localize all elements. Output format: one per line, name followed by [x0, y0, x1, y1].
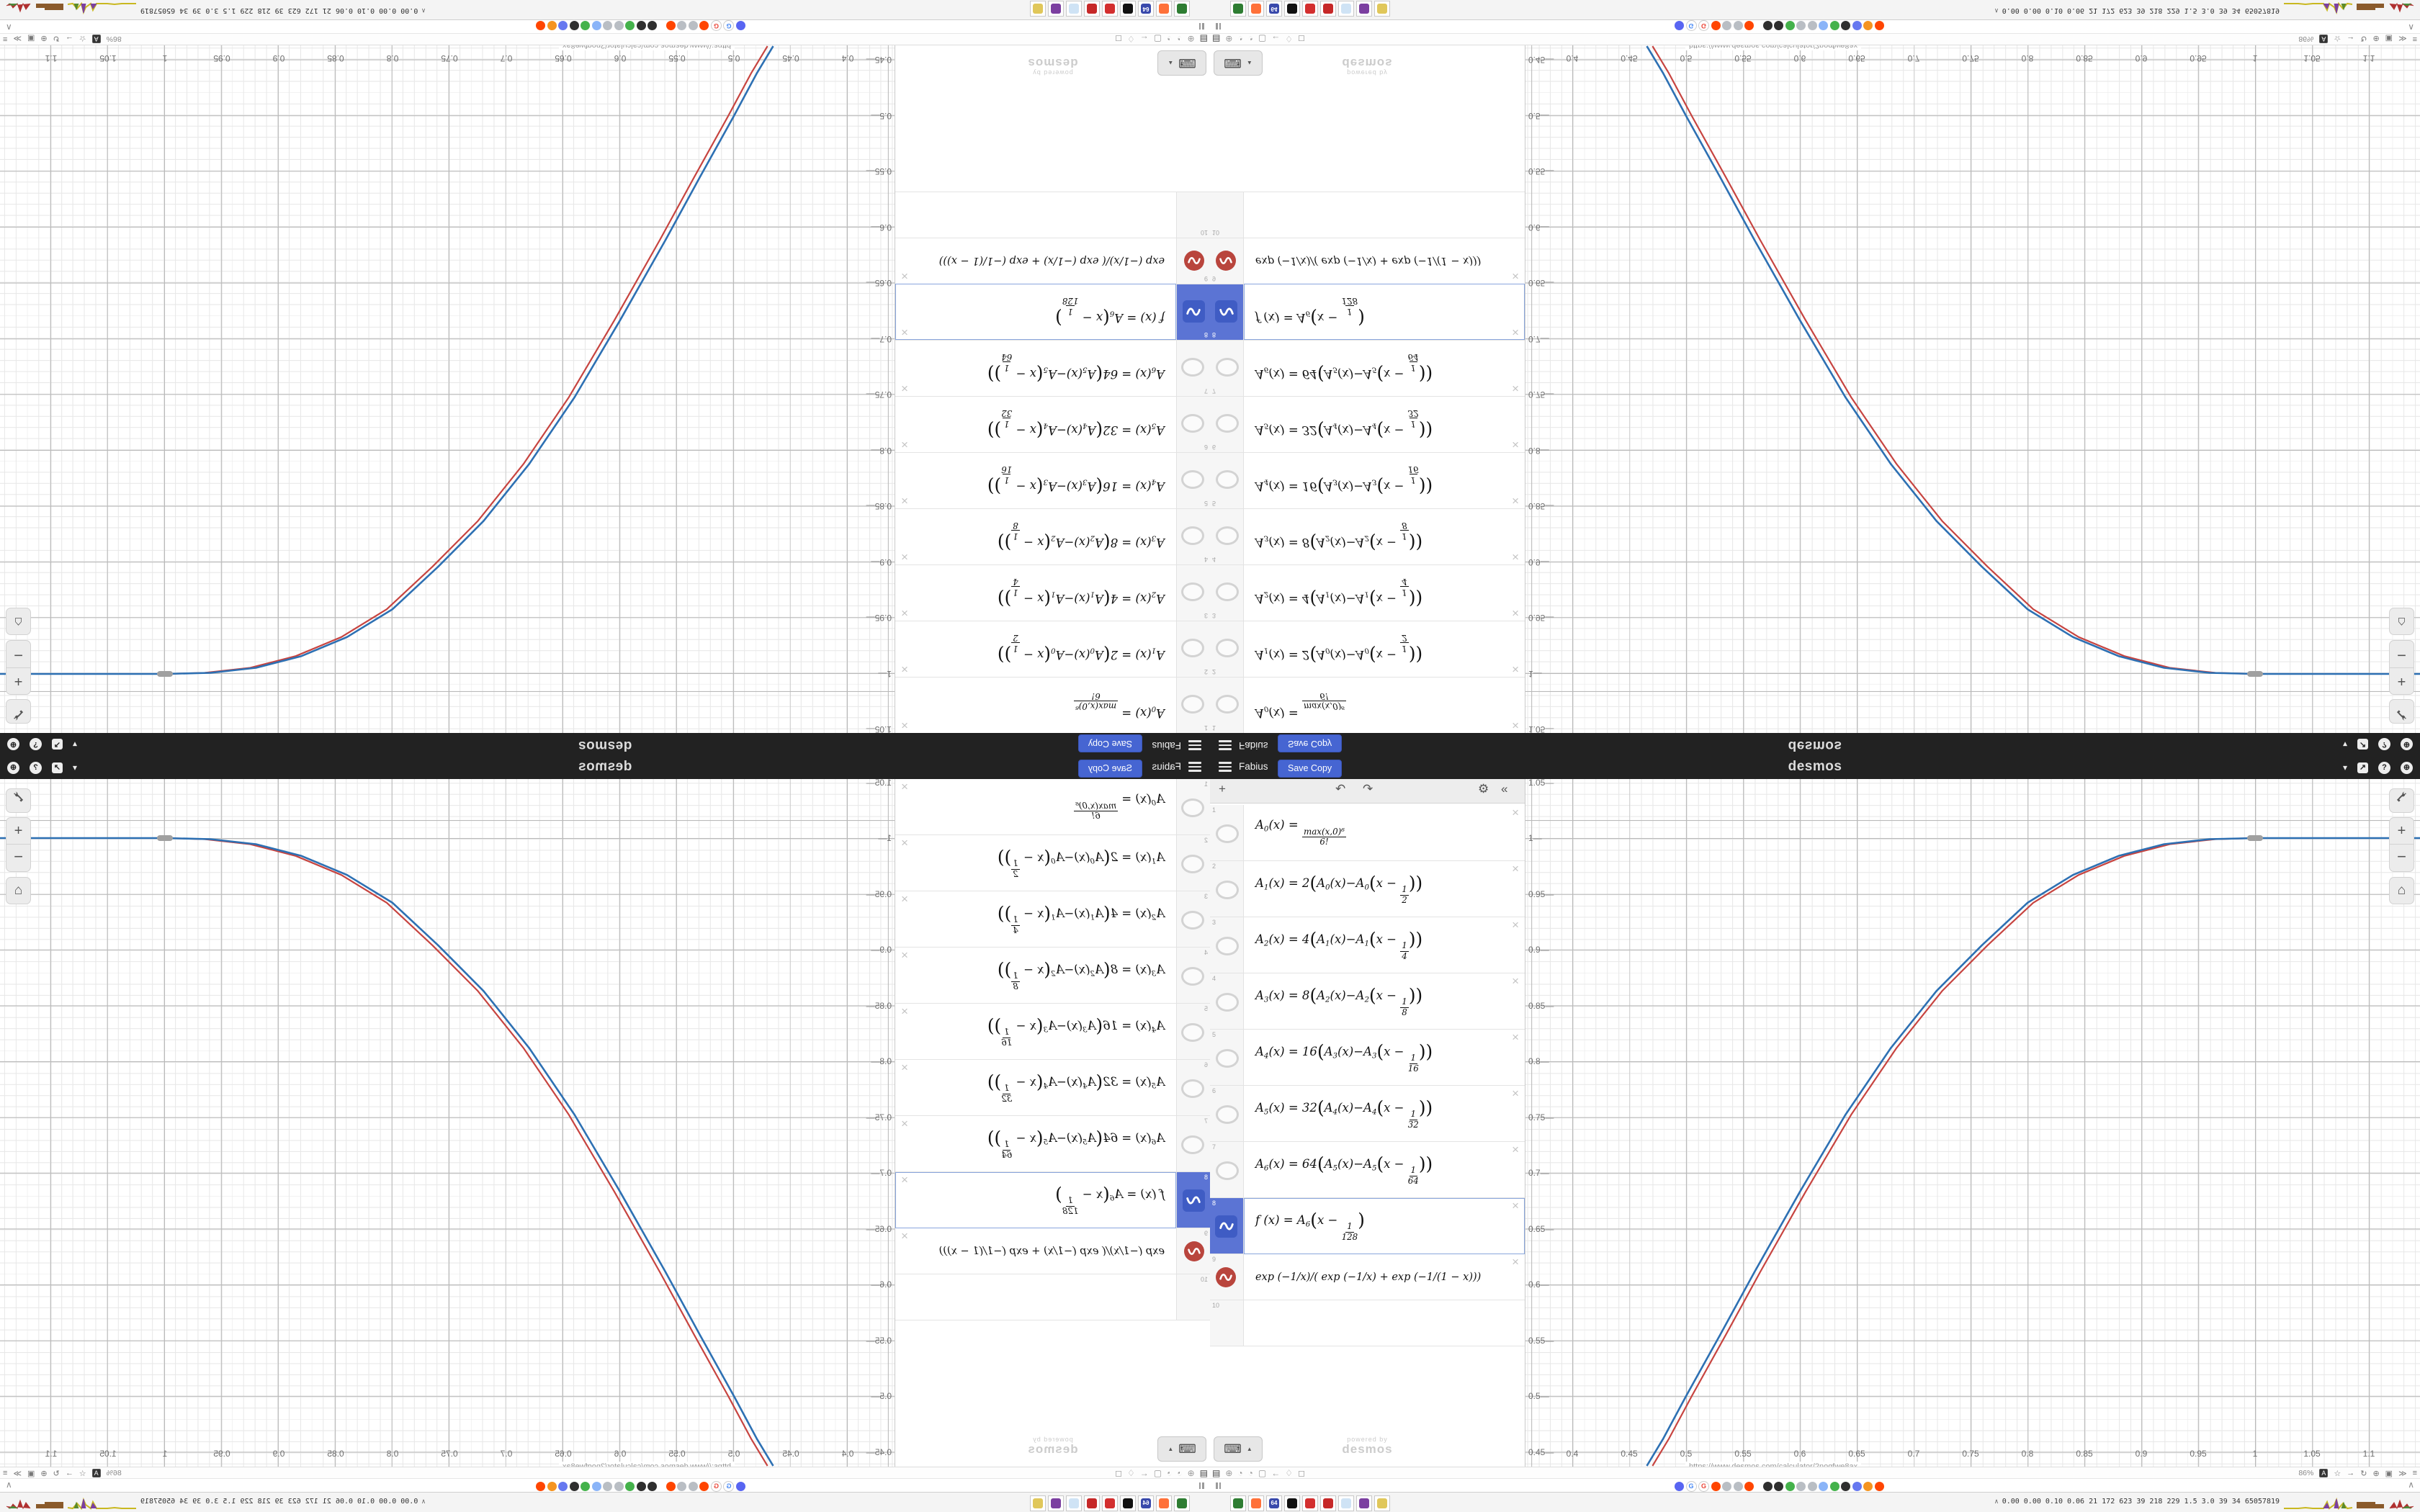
fraction-denominator: 32	[1001, 408, 1012, 418]
forward-arrow-icon: →	[66, 35, 73, 43]
y-axis-label: 0.8—	[1528, 1056, 1549, 1066]
expression-gutter-toggle: 10	[1176, 1274, 1210, 1320]
curve-wave-icon	[1187, 1193, 1201, 1207]
expression-math: A2(x) = 4(A1(x)−A1(x − 14))	[1255, 929, 1422, 962]
clipboard-icon: ▣	[27, 1469, 35, 1478]
statusbar-left-icon[interactable]: ◔	[1237, 1468, 1242, 1478]
y-tick: —	[866, 613, 875, 624]
taskbar-app-icon[interactable]	[1338, 1495, 1354, 1511]
network-sparkline	[6, 1496, 32, 1511]
x-axis-label: 0.6	[1794, 53, 1806, 63]
y-axis-label: 0.75—	[866, 1112, 892, 1122]
globe-icon[interactable]: ⊕	[2401, 762, 2413, 774]
y-axis-label: 0.85—	[1528, 502, 1554, 512]
delete-expression-icon: ×	[901, 552, 908, 562]
tab-favicon[interactable]	[1841, 1482, 1850, 1491]
selected-curve-icon	[1183, 301, 1205, 323]
tracker-globe-icon: ⊕	[40, 1469, 47, 1478]
expression-gutter-toggle[interactable]: 6	[1210, 1086, 1244, 1142]
expression-gutter-toggle[interactable]: 5	[1210, 1030, 1244, 1086]
expression-row: 5A4(x) = 16(A3(x)−A3(x − 116))×	[895, 1004, 1210, 1060]
expression-content: A4(x) = 16(A3(x)−A3(x − 116))×	[895, 452, 1176, 508]
y-axis-label: 0.7—	[1528, 1168, 1549, 1178]
hidden-curve-icon	[1181, 359, 1204, 377]
row-number: 8	[1204, 331, 1208, 338]
delete-expression-icon[interactable]: ×	[1512, 808, 1519, 818]
math-paren: )	[1005, 903, 1012, 924]
expression-content[interactable]: A1(x) = 2(A0(x)−A0(x − 12))×	[1244, 861, 1525, 917]
x-axis-label: 0.55	[1734, 1449, 1751, 1459]
math-text: (x) = 32	[1268, 423, 1317, 437]
math-text: A	[1255, 1157, 1264, 1171]
expression-gutter-toggle: 5	[1210, 452, 1244, 508]
statusbar-left-icon: ▤	[1200, 1468, 1208, 1478]
header-actions: ▾ ↗ ? ⊕	[2343, 756, 2413, 779]
expression-content: A3(x) = 8(A2(x)−A2(x − 18))×	[895, 948, 1176, 1004]
expression-row: 3A2(x) = 4(A1(x)−A1(x − 14))×	[895, 891, 1210, 948]
expression-math: A2(x) = 4(A1(x)−A1(x − 14))	[1255, 577, 1422, 610]
system-monitor-sparklines	[2284, 1495, 2414, 1511]
expression-content[interactable]: A6(x) = 64(A5(x)−A5(x − 164))×	[1244, 1142, 1525, 1198]
add-expression-button[interactable]: +	[1219, 782, 1226, 796]
math-text: (x)−A	[1056, 592, 1090, 606]
tab-favicon[interactable]	[1819, 1482, 1828, 1491]
math-subscript: 3	[1044, 478, 1049, 486]
math-text: A	[1156, 367, 1165, 381]
expression-content[interactable]: exp (−1/x)/( exp (−1/x) + exp (−1/(1 − x…	[1244, 1254, 1525, 1300]
math-paren: (	[1369, 873, 1376, 894]
expression-content[interactable]: A4(x) = 16(A3(x)−A3(x − 116))×	[1244, 1030, 1525, 1086]
taskbar-app-icon	[1066, 1, 1082, 17]
taskbar-app-icon[interactable]	[1230, 1495, 1246, 1511]
math-fraction: 18	[1400, 521, 1409, 541]
statusbar-left-icon[interactable]: ⊕	[1225, 1468, 1232, 1478]
edit-list-gear-icon[interactable]: ⚙	[1478, 782, 1489, 796]
taskbar-app-icon[interactable]	[1302, 1495, 1318, 1511]
tab-favicon[interactable]	[1744, 1482, 1754, 1491]
home-button[interactable]: ⌂	[2389, 877, 2414, 904]
tab-favicon[interactable]	[1852, 1482, 1862, 1491]
curve-blue	[1647, 46, 2420, 674]
taskbar-app-icon[interactable]	[1320, 1495, 1336, 1511]
translate-icon[interactable]: A	[2319, 1469, 2328, 1477]
network-sparkline	[2388, 1, 2414, 16]
expression-content: A6(x) = 64(A5(x)−A5(x − 164))×	[895, 1116, 1176, 1172]
zoom-out-button: −	[6, 844, 31, 872]
expression-gutter-toggle[interactable]: 7	[1210, 1142, 1244, 1198]
delete-expression-icon: ×	[901, 271, 908, 281]
graph-paper: 1.05—1—0.95—0.9—0.85—0.8—0.75—0.7—0.65—0…	[0, 45, 895, 733]
y-tick: —	[871, 557, 879, 567]
expression-row: 1A0(x) = max(x,0)⁶6!×	[1210, 805, 1525, 861]
math-text: (x) = 8	[1111, 963, 1152, 976]
x-axis-label: 0.45	[782, 53, 799, 63]
expression-row: 8f (x) = A6(x − 1128)×	[1210, 1198, 1525, 1254]
clipboard-icon: ▣	[27, 35, 35, 44]
y-tick: —	[1541, 557, 1549, 567]
browser-screen: Fabius Save Copy desmos ▾ ↗ ? ⊕ + ↶ ↷ ⚙ …	[0, 0, 1210, 756]
delete-expression-icon[interactable]: ×	[1512, 920, 1519, 930]
math-paren: )	[998, 847, 1005, 868]
math-text: (x)−A	[1330, 536, 1365, 549]
share-icon[interactable]: ↗	[2357, 762, 2368, 773]
math-fraction: 14	[1400, 941, 1409, 961]
math-text: f (x) = A	[1255, 1213, 1306, 1227]
expression-list: 1A0(x) = max(x,0)⁶6!×2A1(x) = 2(A0(x)−A0…	[1210, 805, 1525, 1346]
taskbar-app-icon[interactable]	[1374, 1495, 1390, 1511]
reload-icon[interactable]: ↻	[2360, 1469, 2367, 1478]
expression-gutter-toggle: 8	[1176, 1172, 1210, 1228]
x-axis-label: 1.05	[2303, 1449, 2320, 1459]
y-axis-label: 0.8—	[871, 446, 892, 456]
tab-favicon[interactable]	[1774, 1482, 1783, 1491]
math-text: A	[1317, 592, 1325, 606]
tabbar-collapse-icon[interactable]: ∧	[2408, 1480, 2414, 1490]
expression-content[interactable]: A2(x) = 4(A1(x)−A1(x − 14))×	[1244, 917, 1525, 973]
tracker-globe-icon[interactable]: ⊕	[2372, 1469, 2379, 1478]
math-text: x −	[1020, 648, 1044, 662]
math-subscript: 4	[1083, 1082, 1088, 1090]
x-axis-label: 0.5	[728, 53, 740, 63]
taskbar-app-icon[interactable]	[1248, 1495, 1264, 1511]
app-glyph	[1087, 1498, 1097, 1508]
delete-expression-icon: ×	[1512, 608, 1519, 618]
fraction-numerator: 1	[1003, 1084, 1011, 1094]
math-paren: (	[1044, 903, 1051, 924]
y-axis-label: 0.6—	[871, 222, 892, 233]
delete-expression-icon[interactable]: ×	[1512, 976, 1519, 986]
tab-favicon	[1841, 22, 1850, 31]
taskbar-app-icon	[1102, 1495, 1118, 1511]
expression-gutter-toggle: 3	[1210, 564, 1244, 621]
powered-by-watermark: powered by desmos	[895, 57, 1210, 76]
math-text: A	[1087, 480, 1095, 493]
math-paren: (	[1095, 1071, 1103, 1092]
tab-favicon[interactable]	[1785, 1482, 1795, 1491]
expression-gutter-toggle[interactable]: 3	[1210, 917, 1244, 973]
math-paren: )	[1415, 588, 1422, 609]
tab-favicon[interactable]	[1675, 1482, 1684, 1491]
y-tick: —	[866, 390, 875, 400]
math-text: (x) = 8	[1268, 989, 1309, 1002]
curve-wave-icon	[1219, 1219, 1234, 1233]
scroll-up-icon: ∧	[1994, 6, 1998, 14]
y-axis-label: 0.55—	[866, 1336, 892, 1346]
expression-content[interactable]: A5(x) = 32(A4(x)−A4(x − 132))×	[1244, 1086, 1525, 1142]
math-text: x −	[1078, 1187, 1103, 1201]
tab-favicon[interactable]	[1711, 1482, 1721, 1491]
x-axis-label: 1	[163, 53, 168, 63]
redo-icon[interactable]: ↷	[1363, 782, 1373, 796]
y-axis-label: 0.6—	[1528, 222, 1549, 233]
tab-favicon[interactable]	[1763, 1482, 1773, 1491]
y-tick: —	[1545, 1336, 1554, 1346]
x-axis-label: 1.1	[2363, 53, 2375, 63]
y-axis-label: 0.9—	[871, 945, 892, 955]
expression-gutter-toggle: 4	[1210, 508, 1244, 564]
taskbar-app-icon	[1048, 1, 1064, 17]
expression-math: A0(x) = max(x,0)⁶6!	[1255, 690, 1346, 720]
chevron-down-icon[interactable]: ▾	[2343, 762, 2347, 773]
expression-gutter-toggle: 10	[1176, 192, 1210, 238]
x-axis-label: 0.7	[1908, 1449, 1920, 1459]
math-paren: (	[1309, 929, 1317, 950]
delete-expression-icon: ×	[1512, 495, 1519, 505]
math-paren: )	[1055, 1184, 1062, 1205]
fraction-denominator: 16	[1001, 464, 1012, 474]
math-text: x −	[1020, 906, 1044, 920]
chevrons-icon[interactable]: ≫	[2398, 1469, 2407, 1478]
math-text: x −	[1317, 1213, 1342, 1227]
expression-gutter-toggle[interactable]: 8	[1210, 1198, 1244, 1254]
app-glyph	[1105, 4, 1115, 14]
tab-favicon	[547, 22, 557, 31]
math-subscript: 5	[1083, 366, 1088, 374]
math-text: A	[1255, 932, 1264, 946]
fraction-denominator: 32	[1408, 408, 1419, 418]
undo-icon[interactable]: ↶	[1335, 782, 1345, 796]
delete-expression-icon: ×	[901, 1119, 908, 1129]
tab-favicon[interactable]	[1734, 1482, 1743, 1491]
tab-favicon[interactable]	[1796, 1482, 1806, 1491]
math-paren: (	[1376, 1041, 1384, 1062]
tab-favicon[interactable]	[1830, 1482, 1839, 1491]
expression-content: A1(x) = 2(A0(x)−A0(x − 12))×	[895, 621, 1176, 677]
fraction-numerator: 1	[1066, 305, 1075, 316]
expression-math: f (x) = A6(x − 1128)	[1055, 1184, 1165, 1217]
menu-lines-icon[interactable]: ≡	[2413, 1469, 2417, 1477]
x-axis-label: 1.1	[45, 53, 58, 63]
expression-content[interactable]: A3(x) = 8(A2(x)−A2(x − 18))×	[1244, 973, 1525, 1030]
expression-gutter-toggle[interactable]: 4	[1210, 973, 1244, 1030]
row-number: 3	[1212, 919, 1216, 926]
expression-math: A2(x) = 4(A1(x)−A1(x − 14))	[998, 577, 1165, 610]
graph-paper[interactable]: 1.05—1—0.95—0.9—0.85—0.8—0.75—0.7—0.65—0…	[1525, 779, 2420, 1467]
page-zoom-level: 86%	[107, 1469, 122, 1477]
y-tick: —	[866, 778, 875, 788]
expression-gutter-toggle[interactable]: 2	[1210, 861, 1244, 917]
curve-wave-icon	[1188, 1245, 1201, 1258]
y-tick: —	[1541, 446, 1549, 456]
math-paren: (	[1310, 307, 1317, 328]
math-fraction: 1128	[1342, 296, 1358, 316]
zoom-in-button[interactable]: +	[2389, 817, 2414, 845]
tab-favicon[interactable]: G	[1698, 1481, 1709, 1492]
x-axis-label: 1.1	[45, 1449, 58, 1459]
fraction-denominator: 2	[1402, 633, 1407, 643]
math-text: x −	[1376, 536, 1401, 549]
y-tick: —	[1545, 502, 1554, 512]
expression-gutter-toggle[interactable]: 10	[1210, 1300, 1244, 1346]
y-axis-label: 0.85—	[866, 502, 892, 512]
math-paren: )	[1415, 985, 1422, 1006]
tab-favicon[interactable]	[1863, 1482, 1873, 1491]
y-axis-label: 0.85—	[1528, 1001, 1554, 1011]
tab-favicon	[1744, 22, 1754, 31]
tab-favicons: GG	[1675, 1481, 1884, 1492]
expression-math: A6(x) = 64(A5(x)−A5(x − 164))	[987, 352, 1165, 385]
math-paren: )	[994, 1128, 1001, 1148]
expression-list: 1A0(x) = max(x,0)⁶6!×2A1(x) = 2(A0(x)−A0…	[895, 192, 1210, 733]
zoom-out-button[interactable]: −	[2389, 844, 2414, 872]
delete-expression-icon[interactable]: ×	[1512, 1257, 1519, 1267]
expression-math: A0(x) = max(x,0)⁶6!	[1074, 690, 1165, 720]
forward-arrow-icon[interactable]: →	[2347, 1469, 2354, 1477]
expression-gutter-toggle: 2	[1210, 621, 1244, 677]
taskbar-app-icon: 64	[1266, 1, 1282, 17]
math-text: x −	[1012, 1075, 1036, 1089]
x-axis-label: 0.5	[1680, 1449, 1693, 1459]
x-axis-label: 0.75	[441, 53, 457, 63]
math-paren: )	[1419, 1041, 1426, 1062]
math-text: A	[1255, 818, 1264, 832]
math-text: A	[1095, 963, 1103, 976]
help-icon[interactable]: ?	[2378, 762, 2390, 774]
expression-content[interactable]: A0(x) = max(x,0)⁶6!×	[1244, 805, 1525, 861]
delete-expression-icon[interactable]: ×	[1512, 1201, 1519, 1211]
statusbar-left-icon: ◔	[1167, 1468, 1172, 1478]
statusbar-left-icon[interactable]: ◔	[1248, 1468, 1253, 1478]
delete-expression-icon[interactable]: ×	[1512, 864, 1519, 874]
tab-favicon	[1785, 22, 1795, 31]
tab-favicon[interactable]	[1808, 1482, 1817, 1491]
math-paren: (	[1103, 588, 1111, 609]
math-paren: (	[1044, 847, 1051, 868]
y-axis-label: 0.8—	[871, 1056, 892, 1066]
math-text: A	[1087, 367, 1095, 381]
tab-favicon	[689, 22, 698, 31]
math-text: A	[1095, 648, 1103, 662]
math-text: x −	[1012, 367, 1036, 381]
y-axis-label: 0.65—	[1528, 1224, 1554, 1234]
tab-favicon	[626, 1482, 635, 1491]
fraction-numerator: 1	[1003, 474, 1011, 485]
delete-expression-icon: ×	[1512, 720, 1519, 730]
math-paren: )	[994, 476, 1001, 497]
math-text: (x)−A	[1056, 536, 1090, 549]
x-axis-label: 1.05	[2303, 53, 2320, 63]
expression-row: 2A1(x) = 2(A0(x)−A0(x − 12))×	[1210, 861, 1525, 917]
statusbar-left-icon[interactable]: ▢	[1258, 1468, 1266, 1478]
graph-settings-wrench-button[interactable]	[2389, 788, 2414, 813]
red-curve-icon	[1216, 251, 1236, 271]
y-axis-label: 0.55—	[1528, 1336, 1554, 1346]
math-fraction: 132	[1001, 1084, 1012, 1104]
math-text: x −	[1012, 480, 1036, 493]
reload-icon: ↻	[53, 35, 60, 44]
expression-row: 5A4(x) = 16(A3(x)−A3(x − 116))×	[1210, 1030, 1525, 1086]
expression-row: 10	[1210, 1300, 1525, 1346]
taskbar-app-icon[interactable]	[1356, 1495, 1372, 1511]
math-text: A	[1317, 932, 1325, 946]
tab-favicon[interactable]	[1722, 1482, 1731, 1491]
x-axis-label: 0.65	[1848, 53, 1865, 63]
statusbar-left-icon[interactable]: ♢	[1285, 1468, 1293, 1478]
taskbar-app-icon	[1284, 1, 1300, 17]
graph-settings-wrench-button	[6, 699, 31, 724]
hidden-curve-icon	[1216, 359, 1239, 377]
taskbar-app-icon[interactable]: 64	[1266, 1495, 1282, 1511]
taskbar-app-icon	[1084, 1495, 1100, 1511]
tab-favicon	[678, 1482, 687, 1491]
expression-gutter-toggle: 8	[1176, 284, 1210, 340]
expression-gutter-toggle[interactable]: 1	[1210, 805, 1244, 861]
math-text: (x) = 32	[1103, 1075, 1152, 1089]
row-number: 10	[1212, 229, 1219, 236]
statusbar-left-icon[interactable]: ◻	[1298, 1468, 1305, 1478]
y-tick: —	[866, 1447, 875, 1457]
delete-expression-icon[interactable]: ×	[1512, 1089, 1519, 1099]
expression-content[interactable]	[1244, 1300, 1525, 1346]
tab-favicon: G	[1686, 21, 1697, 32]
fraction-denominator: 64	[1001, 352, 1012, 362]
wrench-icon	[12, 791, 24, 804]
os-taskbar: 64 ∧0.00 0.00 0.10 0.06 21 172 623 39 21…	[0, 0, 1210, 20]
browser-screen: Fabius Save Copy desmos ▾ ↗ ? ⊕ + ↶ ↷ ⚙ …	[1210, 0, 2420, 756]
math-text: x −	[1376, 876, 1401, 890]
tab-favicon	[1819, 22, 1828, 31]
delete-expression-icon[interactable]: ×	[1512, 1145, 1519, 1155]
app-glyph	[1233, 1498, 1243, 1508]
delete-expression-icon: ×	[1512, 552, 1519, 562]
math-text: A	[1156, 648, 1165, 662]
app-glyph	[1251, 1498, 1261, 1508]
bookmark-star-icon[interactable]: ☆	[2334, 1469, 2341, 1478]
clipboard-icon[interactable]: ▣	[2385, 1469, 2393, 1478]
y-tick: —	[878, 833, 887, 843]
statusbar-left-icon[interactable]: ▤	[1212, 1468, 1220, 1478]
fraction-denominator: 128	[1062, 296, 1079, 306]
math-paren: (	[1095, 364, 1103, 384]
expression-gutter-toggle[interactable]: 9	[1210, 1254, 1244, 1300]
tab-favicon[interactable]: G	[1686, 1481, 1697, 1492]
x-axis-label: 0.9	[2136, 1449, 2148, 1459]
fraction-numerator: 1	[1011, 915, 1020, 926]
zoom-in-button: +	[6, 817, 31, 845]
collapse-panel-icon[interactable]: «	[1501, 782, 1507, 796]
math-text: (x) = 64	[1268, 1157, 1317, 1171]
fraction-denominator: 6!	[1319, 690, 1328, 701]
graph-settings-wrench-button	[6, 788, 31, 813]
tab-favicon	[648, 1482, 658, 1491]
y-tick: —	[871, 945, 879, 955]
math-fraction: 116	[1001, 464, 1012, 485]
math-subscript: 1	[1051, 914, 1056, 922]
math-text: A	[1156, 906, 1165, 920]
y-axis-label: 0.7—	[1528, 334, 1549, 344]
tab-favicon	[700, 22, 709, 31]
fraction-numerator: max(x,0)⁶	[1074, 701, 1118, 711]
math-subscript: 4	[1083, 422, 1088, 430]
taskbar-app-icon	[1356, 1, 1372, 17]
fraction-denominator: 64	[1408, 352, 1419, 362]
taskbar-app-icon[interactable]	[1284, 1495, 1300, 1511]
math-fraction: max(x,0)⁶6!	[1302, 827, 1346, 847]
expression-content: f (x) = A6(x − 1128)×	[895, 1172, 1176, 1228]
delete-expression-icon[interactable]: ×	[1512, 1032, 1519, 1043]
endpoint-pill	[157, 835, 173, 841]
statusbar-left-icon[interactable]: ←	[1271, 1468, 1280, 1478]
x-axis-label: 1.1	[2363, 1449, 2375, 1459]
y-axis-label: 0.5—	[871, 111, 892, 121]
endpoint-pill	[2247, 671, 2263, 677]
expression-toolbar: + ↶ ↷ ⚙ «	[1210, 779, 1525, 804]
expression-content[interactable]: f (x) = A6(x − 1128)×	[1244, 1198, 1525, 1254]
taskbar-app-icon	[1156, 1, 1172, 17]
tab-favicon[interactable]	[1875, 1482, 1884, 1491]
expression-row: 6A5(x) = 32(A4(x)−A4(x − 132))×	[895, 1060, 1210, 1116]
taskbar-apps: 64	[1230, 1, 1390, 17]
